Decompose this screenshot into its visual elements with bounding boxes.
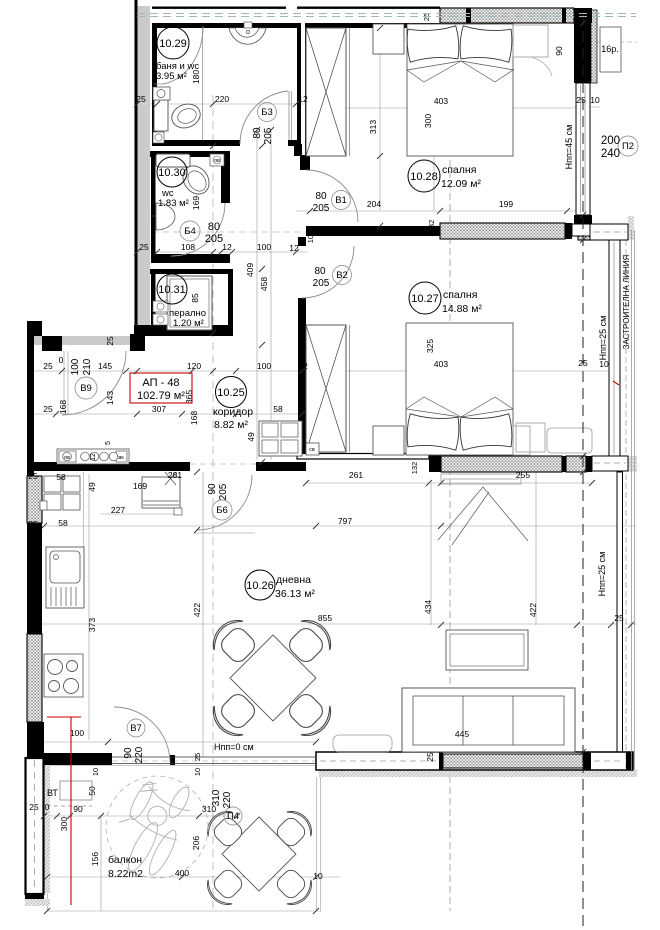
svg-text:10: 10 <box>599 359 609 369</box>
svg-text:255: 255 <box>516 470 530 480</box>
svg-text:10.31: 10.31 <box>158 284 186 296</box>
svg-text:спалня: спалня <box>443 289 477 301</box>
svg-text:458: 458 <box>259 277 269 291</box>
svg-text:12.09 м²: 12.09 м² <box>441 178 481 190</box>
svg-text:П4: П4 <box>227 811 239 822</box>
svg-text:80: 80 <box>315 191 327 202</box>
svg-text:168: 168 <box>58 400 68 414</box>
svg-text:вк: вк <box>118 455 124 461</box>
svg-text:58: 58 <box>273 404 283 414</box>
svg-text:169: 169 <box>191 196 201 210</box>
svg-text:10.27: 10.27 <box>411 293 439 305</box>
svg-text:445: 445 <box>455 729 469 739</box>
svg-text:307: 307 <box>152 404 166 414</box>
svg-text:16р.: 16р. <box>601 44 619 54</box>
svg-text:100: 100 <box>70 728 84 738</box>
svg-text:36.13 м²: 36.13 м² <box>275 588 315 600</box>
svg-text:Нпп=25 см: Нпп=25 см <box>598 316 608 361</box>
svg-text:5: 5 <box>105 441 112 445</box>
svg-text:261: 261 <box>349 470 363 480</box>
svg-text:25: 25 <box>614 613 624 623</box>
svg-text:90: 90 <box>123 747 134 759</box>
svg-text:422: 422 <box>192 603 202 617</box>
svg-text:1.83 м²: 1.83 м² <box>158 198 189 209</box>
svg-text:10: 10 <box>193 768 202 776</box>
svg-text:25: 25 <box>28 519 38 529</box>
svg-text:403: 403 <box>434 359 448 369</box>
svg-text:80: 80 <box>252 127 263 139</box>
svg-text:25: 25 <box>139 242 149 252</box>
svg-text:49: 49 <box>246 432 256 442</box>
svg-text:220: 220 <box>222 791 233 808</box>
svg-text:240: 240 <box>601 148 620 160</box>
svg-text:10.29: 10.29 <box>159 38 187 50</box>
svg-text:100: 100 <box>257 242 271 252</box>
svg-text:коридор: коридор <box>213 406 253 418</box>
svg-text:10: 10 <box>313 871 323 881</box>
svg-text:200: 200 <box>601 135 620 147</box>
svg-text:310: 310 <box>202 804 216 814</box>
svg-text:25: 25 <box>43 361 53 371</box>
svg-text:1.20 м²: 1.20 м² <box>173 318 204 329</box>
svg-text:12: 12 <box>298 94 308 104</box>
svg-text:156: 156 <box>90 852 100 866</box>
svg-text:403: 403 <box>434 96 448 106</box>
svg-text:132: 132 <box>427 220 436 233</box>
svg-text:балкон: балкон <box>108 854 142 866</box>
svg-text:В9: В9 <box>80 383 92 394</box>
svg-text:50: 50 <box>87 786 97 796</box>
svg-text:90: 90 <box>554 46 564 56</box>
svg-text:25: 25 <box>29 802 39 812</box>
svg-text:0: 0 <box>59 355 64 365</box>
svg-text:25: 25 <box>422 13 431 21</box>
svg-text:10: 10 <box>91 768 100 776</box>
svg-text:281: 281 <box>168 470 182 480</box>
svg-text:10.26: 10.26 <box>246 580 274 592</box>
svg-text:12: 12 <box>289 243 299 253</box>
svg-text:199: 199 <box>499 199 513 209</box>
svg-text:100: 100 <box>70 358 81 375</box>
svg-text:102: 102 <box>306 231 315 244</box>
svg-text:ВТ: ВТ <box>47 788 58 798</box>
svg-text:3.95 м²: 3.95 м² <box>156 71 187 82</box>
svg-text:Б4: Б4 <box>184 226 196 237</box>
svg-text:25: 25 <box>28 471 38 481</box>
svg-text:25: 25 <box>136 94 146 104</box>
svg-text:80: 80 <box>208 221 220 233</box>
svg-text:206: 206 <box>191 836 201 850</box>
svg-text:8.22m2: 8.22m2 <box>108 868 143 880</box>
svg-text:дневна: дневна <box>276 574 311 586</box>
svg-text:204: 204 <box>367 199 381 209</box>
svg-text:12: 12 <box>222 242 232 252</box>
svg-text:25: 25 <box>105 336 115 346</box>
svg-text:169: 169 <box>133 481 147 491</box>
svg-text:145: 145 <box>98 361 112 371</box>
svg-text:0: 0 <box>45 802 50 812</box>
svg-text:90: 90 <box>207 483 218 495</box>
svg-text:227: 227 <box>111 505 125 515</box>
svg-text:12: 12 <box>90 453 97 461</box>
svg-text:373: 373 <box>87 618 97 632</box>
svg-text:25: 25 <box>91 753 100 761</box>
svg-text:В1: В1 <box>335 195 347 206</box>
svg-text:102.79 м²: 102.79 м² <box>137 390 185 402</box>
svg-text:210: 210 <box>82 358 93 375</box>
svg-text:25: 25 <box>193 753 202 761</box>
svg-text:205: 205 <box>263 127 274 144</box>
svg-text:313: 313 <box>368 120 378 134</box>
svg-text:Нпп=45 см: Нпп=45 см <box>564 125 574 170</box>
svg-text:Б3: Б3 <box>261 107 273 118</box>
svg-text:220: 220 <box>215 94 229 104</box>
svg-text:В2: В2 <box>336 270 348 281</box>
svg-text:205: 205 <box>218 483 229 500</box>
svg-text:спалня: спалня <box>442 164 476 176</box>
svg-text:205: 205 <box>205 233 223 245</box>
svg-text:90: 90 <box>73 804 83 814</box>
svg-text:220: 220 <box>134 746 145 763</box>
svg-text:49: 49 <box>87 482 97 492</box>
svg-text:797: 797 <box>338 516 352 526</box>
svg-text:10.30: 10.30 <box>158 167 186 179</box>
svg-text:409: 409 <box>245 263 255 277</box>
svg-text:ов: ов <box>214 158 220 164</box>
svg-text:80: 80 <box>314 266 326 277</box>
svg-text:АП - 48: АП - 48 <box>142 377 179 389</box>
svg-text:25: 25 <box>28 619 38 629</box>
svg-text:108: 108 <box>181 242 195 252</box>
svg-text:132: 132 <box>410 462 419 475</box>
svg-text:422: 422 <box>528 603 538 617</box>
svg-text:Б6: Б6 <box>216 505 228 516</box>
svg-text:В7: В7 <box>130 723 142 734</box>
svg-text:Нпп=25 см: Нпп=25 см <box>597 552 607 597</box>
svg-text:325: 325 <box>425 339 435 353</box>
svg-text:10: 10 <box>590 95 600 105</box>
svg-text:П2: П2 <box>622 141 634 152</box>
svg-text:25: 25 <box>425 752 435 762</box>
svg-text:205: 205 <box>313 278 330 289</box>
svg-text:10.28: 10.28 <box>410 171 438 183</box>
svg-text:Нпп=0 см: Нпп=0 см <box>214 742 254 752</box>
svg-text:180: 180 <box>191 70 201 84</box>
svg-text:168: 168 <box>189 411 199 425</box>
svg-text:св: св <box>309 447 315 453</box>
svg-text:855: 855 <box>318 613 332 623</box>
svg-text:58: 58 <box>56 472 66 482</box>
svg-text:ЗАСТРОИТЕЛНА ЛИНИЯ: ЗАСТРОИТЕЛНА ЛИНИЯ <box>622 254 631 349</box>
svg-text:58: 58 <box>58 518 68 528</box>
svg-text:300: 300 <box>423 114 433 128</box>
svg-text:205: 205 <box>313 203 330 214</box>
svg-text:25: 25 <box>576 95 586 105</box>
svg-text:25: 25 <box>43 404 53 414</box>
svg-text:10.25: 10.25 <box>217 387 245 399</box>
svg-text:8.82 м²: 8.82 м² <box>214 419 249 431</box>
svg-text:ов: ов <box>64 455 70 461</box>
svg-text:100: 100 <box>257 361 271 371</box>
svg-text:85: 85 <box>190 293 200 303</box>
svg-text:143: 143 <box>105 391 115 405</box>
svg-text:14.88 м²: 14.88 м² <box>442 303 482 315</box>
svg-text:434: 434 <box>423 600 433 614</box>
